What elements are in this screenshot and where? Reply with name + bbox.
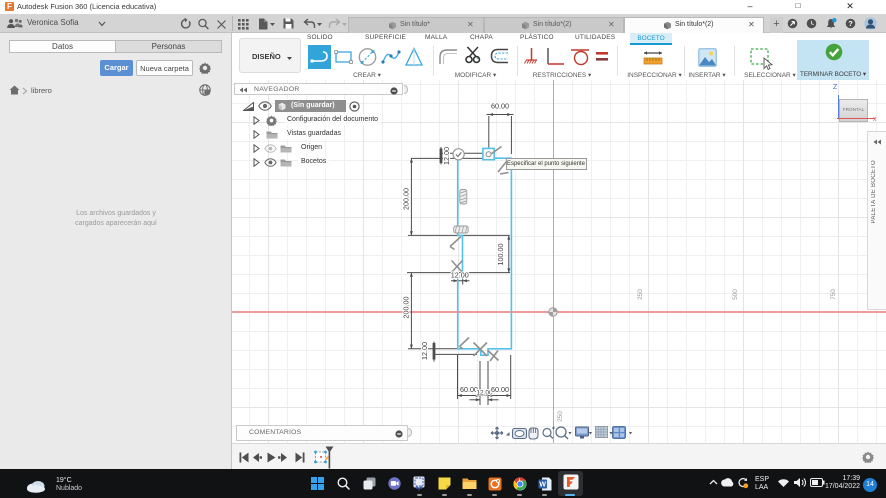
svg-text:60.00: 60.00 (460, 385, 478, 394)
svg-text:12.00: 12.00 (451, 270, 469, 279)
svg-text:60.00: 60.00 (491, 102, 509, 111)
svg-text:12.00: 12.00 (442, 147, 451, 165)
svg-text:100.00: 100.00 (496, 244, 505, 266)
svg-text:60.00: 60.00 (491, 385, 509, 394)
svg-text:12.00: 12.00 (420, 342, 429, 360)
svg-text:?: ? (848, 19, 853, 28)
svg-text:200.00: 200.00 (402, 188, 411, 210)
svg-text:W: W (539, 482, 546, 489)
svg-text:200.00: 200.00 (402, 297, 411, 319)
